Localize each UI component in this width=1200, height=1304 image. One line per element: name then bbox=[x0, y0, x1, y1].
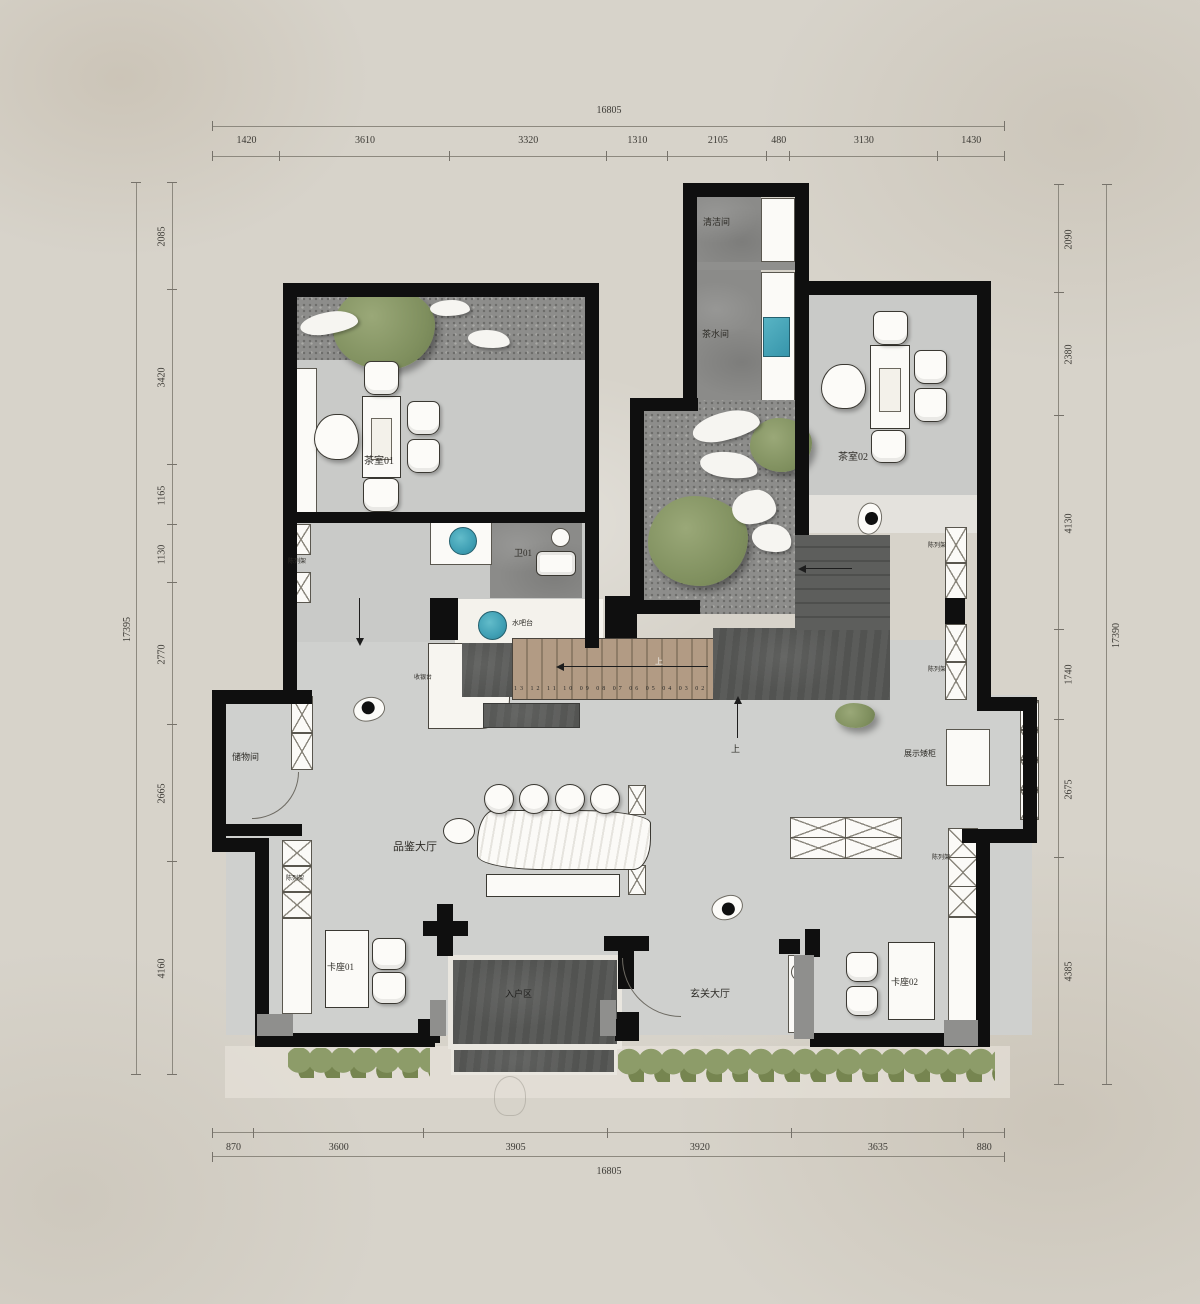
label-display-shelf: 陈列架 bbox=[288, 556, 306, 565]
label-up: 上 bbox=[655, 656, 663, 667]
display-shelf-cell bbox=[945, 624, 967, 662]
wall-segment bbox=[212, 838, 269, 852]
wall-segment bbox=[585, 512, 599, 648]
dim-top-segments: 1420 3610 3320 1310 2105 480 3130 1430 bbox=[213, 136, 1005, 157]
chair bbox=[873, 311, 908, 345]
chair bbox=[914, 350, 947, 384]
label-cleaning-room: 清洁间 bbox=[703, 215, 730, 228]
person-sketch-outside bbox=[494, 1076, 526, 1116]
hall-live-edge-table bbox=[477, 810, 651, 870]
label-water-bar: 水吧台 bbox=[512, 618, 533, 628]
pantry-sink bbox=[763, 317, 790, 357]
entry-slab bbox=[448, 955, 622, 1049]
hedge-left bbox=[288, 1048, 430, 1078]
label-cashier: 收银台 bbox=[414, 672, 432, 681]
foyer-island-cell bbox=[845, 837, 902, 859]
dim-label: 1165 bbox=[156, 485, 167, 505]
round-chair bbox=[519, 784, 549, 814]
dim-label: 2085 bbox=[157, 226, 168, 246]
column bbox=[779, 939, 800, 954]
hedge-right bbox=[618, 1048, 995, 1082]
wc01-mirror-basin bbox=[551, 528, 570, 547]
round-chair bbox=[484, 784, 514, 814]
cleaning-room-cabinet bbox=[761, 198, 795, 262]
chair bbox=[407, 401, 440, 435]
washbasin-sink bbox=[449, 527, 477, 555]
dim-label: 2770 bbox=[157, 644, 168, 664]
dim-label: 4385 bbox=[1064, 962, 1075, 982]
wall-segment bbox=[630, 398, 644, 614]
label-tea-pantry: 茶水间 bbox=[702, 327, 729, 340]
label-display-shelf: 陈列架 bbox=[932, 852, 950, 861]
dim-label: 880 bbox=[977, 1143, 992, 1153]
wall-segment bbox=[795, 295, 809, 535]
label-display-shelf: 陈列架 bbox=[928, 664, 946, 673]
pantry-divider bbox=[697, 262, 796, 270]
dim-label: 17390 bbox=[1111, 623, 1122, 648]
display-shelf-cell bbox=[945, 527, 967, 563]
chair bbox=[871, 430, 906, 463]
dim-label: 1310 bbox=[627, 136, 647, 146]
display-low-cabinet bbox=[946, 729, 990, 786]
round-chair bbox=[555, 784, 585, 814]
dim-label: 3610 bbox=[355, 136, 375, 146]
wall-segment bbox=[585, 283, 599, 526]
wall-segment bbox=[296, 512, 588, 523]
label-booth-02: 卡座02 bbox=[891, 975, 918, 988]
wall-segment bbox=[795, 281, 991, 295]
entry-slab-outer bbox=[451, 1047, 617, 1075]
plinth-gray bbox=[257, 1014, 293, 1036]
stair-tread-numbers: 13 12 11 10 09 08 07 06 05 04 03 02 bbox=[514, 686, 707, 692]
foyer-island-cell bbox=[790, 837, 847, 859]
display-shelf-cell bbox=[291, 733, 313, 770]
wall-segment bbox=[640, 600, 700, 614]
dim-label: 3905 bbox=[506, 1143, 526, 1153]
tea02-tea-tray bbox=[879, 368, 901, 412]
stair-platform bbox=[713, 628, 890, 700]
label-storage: 储物间 bbox=[232, 750, 259, 763]
foyer-island-cell bbox=[845, 817, 902, 839]
rock bbox=[430, 300, 470, 316]
dim-label: 3635 bbox=[868, 1143, 888, 1153]
wall-segment bbox=[255, 852, 269, 1034]
label-display-shelf: 陈列架 bbox=[928, 540, 946, 549]
label-entry-area: 入户区 bbox=[505, 987, 532, 1000]
under-stair-bench bbox=[483, 703, 580, 728]
dim-label: 16805 bbox=[597, 1167, 622, 1177]
display-shelf-cell bbox=[945, 563, 967, 599]
booth02-side-pillar bbox=[948, 917, 978, 1031]
floor-cleaning-room bbox=[697, 196, 761, 262]
wall-segment bbox=[795, 183, 809, 295]
dim-label: 870 bbox=[226, 1143, 241, 1153]
label-booth-01: 卡座01 bbox=[327, 960, 354, 973]
label-foyer-hall: 玄关大厅 bbox=[690, 985, 730, 1000]
label-up: 上 bbox=[731, 742, 740, 755]
dim-label: 2665 bbox=[157, 783, 168, 803]
stair-direction-arrow bbox=[560, 666, 708, 667]
wall-segment bbox=[283, 283, 297, 703]
table-side-cabinet bbox=[628, 785, 646, 815]
wall-segment bbox=[212, 690, 312, 704]
hall-bench bbox=[486, 874, 620, 897]
upper-stair-arrow bbox=[802, 568, 852, 569]
wall-segment bbox=[977, 281, 991, 711]
plinth-gray bbox=[430, 1000, 446, 1036]
wall-segment bbox=[976, 829, 990, 1047]
dim-label: 4160 bbox=[157, 958, 168, 978]
chair bbox=[407, 439, 440, 473]
wall-segment bbox=[683, 183, 809, 197]
dim-label: 3420 bbox=[157, 368, 168, 388]
foyer-island-cell bbox=[790, 817, 847, 839]
corridor-arrow bbox=[359, 598, 360, 642]
dim-label: 1740 bbox=[1064, 665, 1075, 685]
dim-right-total: 17390 bbox=[1106, 185, 1125, 1085]
dim-label: 2090 bbox=[1064, 229, 1075, 249]
armchair bbox=[821, 364, 866, 409]
column bbox=[423, 921, 468, 936]
dim-bottom-total: 16805 bbox=[213, 1156, 1005, 1177]
dim-label: 2380 bbox=[1064, 345, 1075, 365]
wall-segment bbox=[962, 829, 1037, 843]
label-wc01: 卫01 bbox=[514, 546, 532, 559]
plinth-gray bbox=[944, 1020, 978, 1046]
column bbox=[805, 929, 820, 957]
label-tasting-hall: 品鉴大厅 bbox=[393, 838, 437, 854]
dim-right-segments: 2090 2380 4130 1740 2675 4385 bbox=[1058, 185, 1079, 1085]
wall-segment bbox=[1023, 697, 1037, 843]
display-shelf-cell bbox=[945, 662, 967, 700]
person-figure bbox=[847, 499, 884, 536]
dim-top-total: 16805 bbox=[213, 106, 1005, 127]
chair bbox=[846, 986, 878, 1016]
display-shelf-cell bbox=[948, 857, 978, 888]
chair bbox=[372, 972, 406, 1004]
dim-label: 1420 bbox=[236, 136, 256, 146]
label-tea-room-01: 茶室01 bbox=[364, 452, 394, 467]
wall-segment bbox=[430, 598, 458, 640]
water-bar-sink bbox=[478, 611, 507, 640]
dim-label: 4130 bbox=[1064, 513, 1075, 533]
column bbox=[617, 1012, 639, 1036]
chair bbox=[364, 361, 399, 395]
wall-segment bbox=[605, 596, 637, 638]
armchair bbox=[314, 414, 359, 460]
label-display-cabinet: 展示矮柜 bbox=[904, 748, 936, 759]
wall-segment bbox=[283, 283, 599, 297]
dim-left-total: 17395 bbox=[118, 183, 137, 1075]
dim-left-segments: 2085 3420 1165 1130 2770 2665 4160 bbox=[152, 183, 173, 1075]
dim-label: 3600 bbox=[329, 1143, 349, 1153]
chair bbox=[372, 938, 406, 970]
dim-label: 2105 bbox=[708, 136, 728, 146]
label-display-shelf: 陈列架 bbox=[286, 873, 304, 882]
display-shelf-cell bbox=[282, 892, 312, 918]
wc01-bathtub bbox=[536, 551, 576, 576]
dim-label: 3320 bbox=[518, 136, 538, 146]
dim-label: 3130 bbox=[854, 136, 874, 146]
dim-label: 1130 bbox=[156, 544, 167, 564]
chair bbox=[914, 388, 947, 422]
oval-stool bbox=[443, 818, 475, 844]
chair bbox=[363, 478, 399, 512]
wall-segment bbox=[683, 183, 697, 411]
pillar-gray bbox=[794, 955, 814, 1039]
label-tea-room-02: 茶室02 bbox=[838, 448, 868, 463]
bush-hall bbox=[835, 703, 875, 728]
left-wardrobe bbox=[282, 918, 312, 1014]
display-shelf-cell bbox=[282, 840, 312, 866]
wall-segment bbox=[945, 598, 965, 624]
wall-segment bbox=[212, 824, 302, 836]
floor-plan-page: { "dims": { "top": {"total":"16805","seg… bbox=[0, 0, 1200, 1304]
dim-label: 480 bbox=[771, 136, 786, 146]
display-shelf-cell bbox=[948, 886, 978, 917]
dim-label: 17395 bbox=[122, 617, 133, 642]
plinth-gray bbox=[600, 1000, 616, 1036]
upper-stair-flight bbox=[795, 535, 890, 630]
dim-bottom-segments: 870 3600 3905 3920 3635 880 bbox=[213, 1132, 1005, 1153]
stair-base-slab bbox=[462, 643, 514, 697]
dim-label: 1430 bbox=[961, 136, 981, 146]
platform-up-arrow bbox=[737, 700, 738, 738]
dim-label: 2675 bbox=[1064, 779, 1075, 799]
dim-label: 16805 bbox=[597, 106, 622, 116]
round-chair bbox=[590, 784, 620, 814]
chair bbox=[846, 952, 878, 982]
column bbox=[604, 936, 649, 951]
dim-label: 3920 bbox=[690, 1143, 710, 1153]
